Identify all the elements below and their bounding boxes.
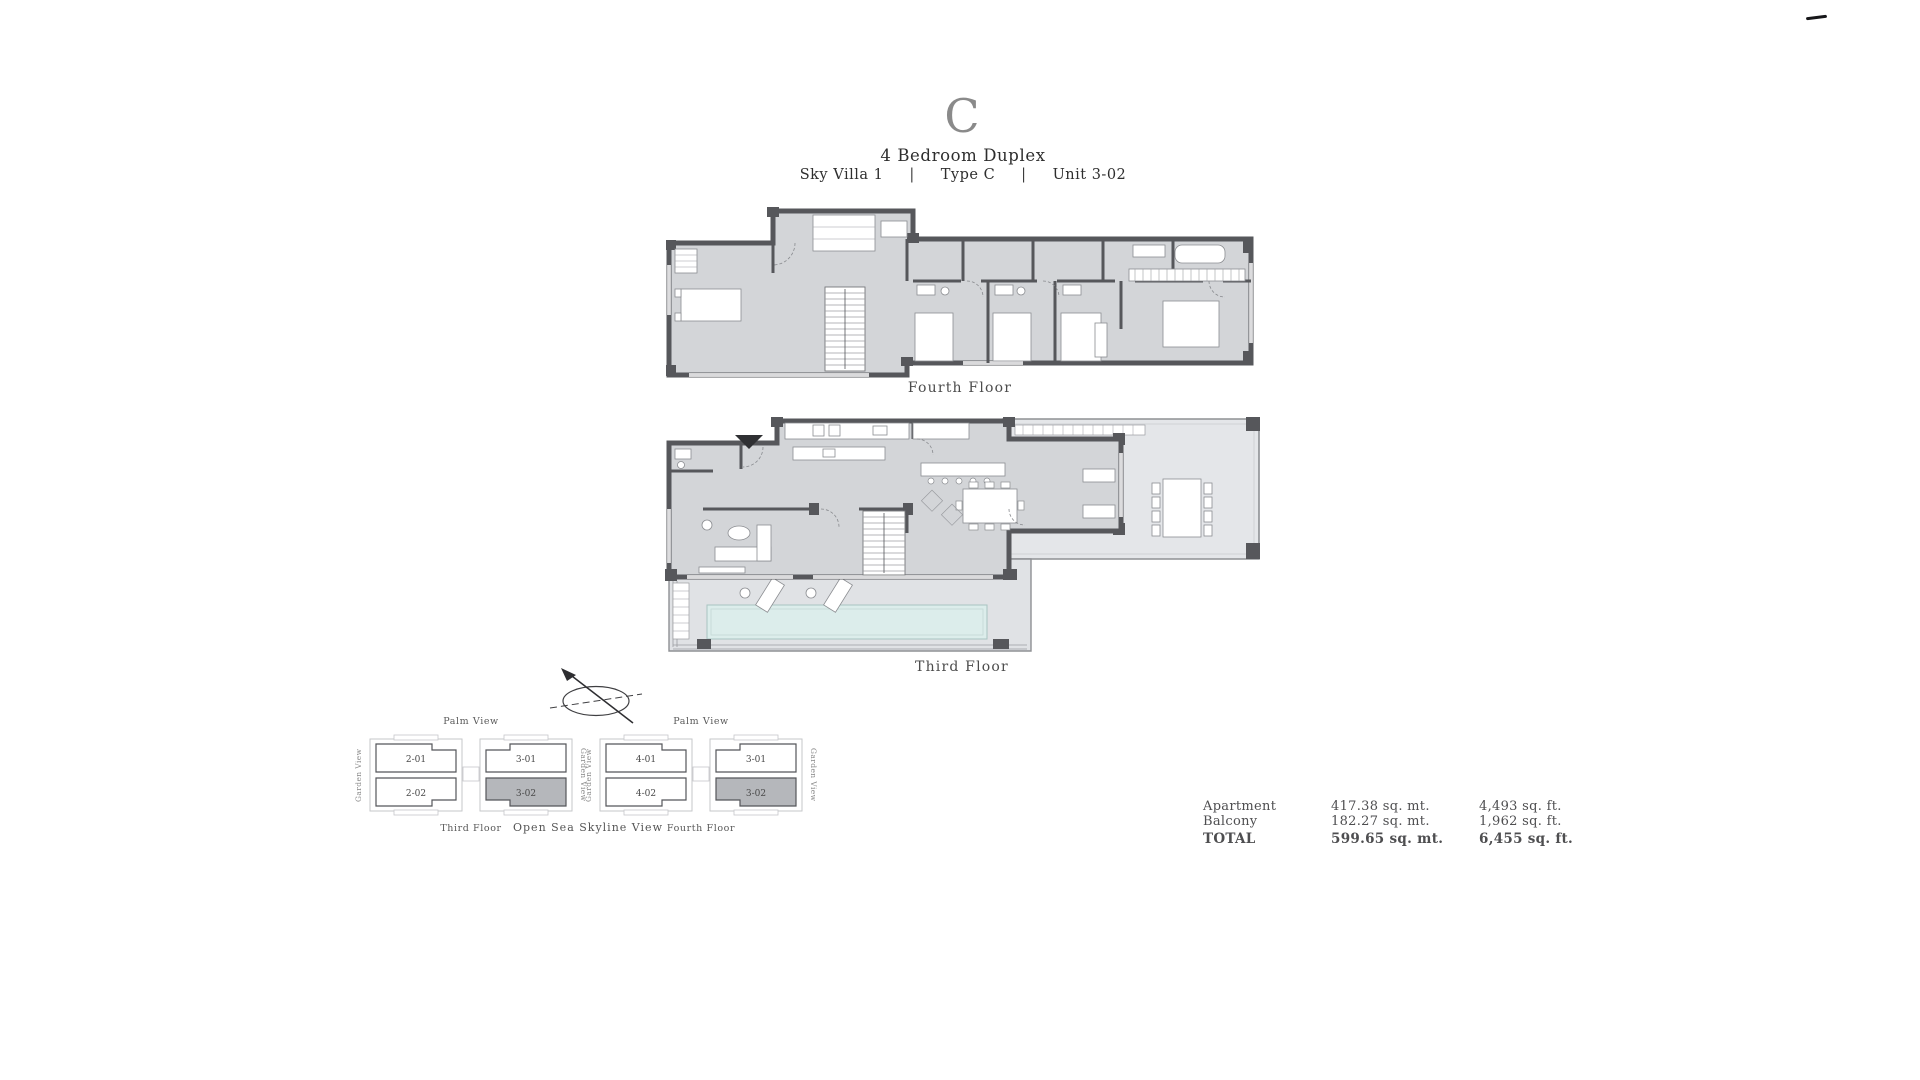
- area-metric: 182.27 sq. mt.: [1331, 814, 1479, 829]
- table-row-balcony: Balcony 182.27 sq. mt. 1,962 sq. ft.: [1203, 814, 1583, 829]
- area-name: Apartment: [1203, 799, 1331, 814]
- unit-label: 3-02: [516, 789, 536, 799]
- fourth-floor-label: Fourth Floor: [660, 380, 1260, 396]
- third-floor-plan: [663, 413, 1263, 661]
- unit-label: 3-01: [516, 755, 536, 765]
- third-floor-label: Third Floor: [662, 659, 1262, 675]
- table-row-apartment: Apartment 417.38 sq. mt. 4,493 sq. ft.: [1203, 799, 1583, 814]
- fourth-floor-plan: [663, 203, 1255, 385]
- unit-label: 3-02: [746, 789, 766, 799]
- key-plan-third-floor: Palm View Garden View 2-01 3-01 2-02 3-0…: [352, 716, 590, 834]
- palm-view-label: Palm View: [443, 716, 499, 727]
- subtitle-separator: |: [909, 167, 914, 183]
- unit-label: 2-01: [406, 755, 426, 765]
- garden-view-label: Garden View: [352, 730, 366, 820]
- area-name: Balcony: [1203, 814, 1331, 829]
- unit-type: Type C: [941, 167, 995, 183]
- area-imperial: 1,962 sq. ft.: [1479, 814, 1583, 829]
- key-plan-fourth-floor: Palm View Garden View 4-01 3-01 4-02 3-0…: [582, 716, 820, 834]
- terrace-pool: [707, 605, 987, 639]
- key-plan-third-diagram: 2-01 3-01 2-02 3-02: [366, 727, 576, 823]
- page-title: 4 Bedroom Duplex: [663, 146, 1263, 165]
- unit-label: 3-01: [746, 755, 766, 765]
- area-metric: 599.65 sq. mt.: [1331, 832, 1479, 847]
- unit-label: 4-02: [636, 789, 656, 799]
- garden-view-label: Garden View: [806, 730, 820, 820]
- subtitle-separator: |: [1021, 167, 1026, 183]
- area-imperial: 6,455 sq. ft.: [1479, 832, 1583, 847]
- open-sea-view-label: Open Sea Skyline View: [470, 821, 706, 834]
- area-name: TOTAL: [1203, 832, 1331, 847]
- area-metric: 417.38 sq. mt.: [1331, 799, 1479, 814]
- fourth-floor-outline: [669, 211, 1251, 375]
- plan-letter: C: [663, 92, 1263, 140]
- unit-label: 2-02: [406, 789, 426, 799]
- area-table: Apartment 417.38 sq. mt. 4,493 sq. ft. B…: [1203, 799, 1583, 847]
- fourth-floor-stairs: [825, 287, 865, 371]
- corner-dash-mark: [1806, 15, 1827, 21]
- table-row-total: TOTAL 599.65 sq. mt. 6,455 sq. ft.: [1203, 829, 1583, 847]
- page-subtitle: Sky Villa 1|Type C|Unit 3-02: [663, 167, 1263, 183]
- unit-label: 4-01: [636, 755, 656, 765]
- unit-number: Unit 3-02: [1053, 167, 1127, 183]
- header: C 4 Bedroom Duplex Sky Villa 1|Type C|Un…: [663, 92, 1263, 183]
- third-floor-stairs: [863, 511, 905, 575]
- project-name: Sky Villa 1: [800, 167, 884, 183]
- key-plan-fourth-diagram: 4-01 3-01 4-02 3-02: [596, 727, 806, 823]
- palm-view-label: Palm View: [673, 716, 729, 727]
- garden-view-label: Garden View: [582, 730, 596, 820]
- area-imperial: 4,493 sq. ft.: [1479, 799, 1583, 814]
